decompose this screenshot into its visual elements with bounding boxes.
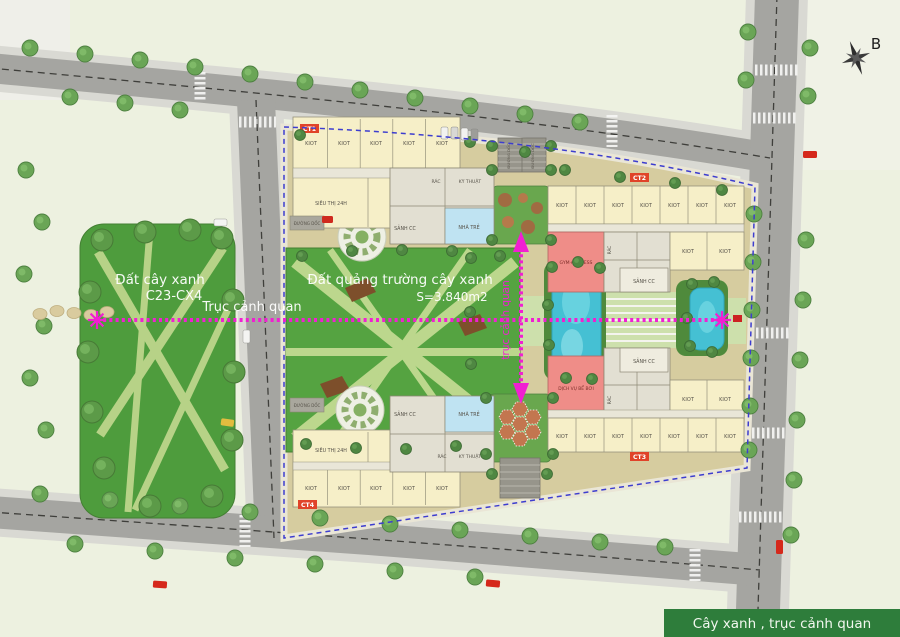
tree-icon [595,263,606,274]
tree-icon [187,59,203,75]
tree-icon [401,444,412,455]
kiot-label: KIOT [403,486,416,492]
site-plan-canvas: ĐƯỜNG DỐC ĐƯỜNG DỐC [0,0,900,637]
axis-marker [733,315,742,322]
tree-icon [34,214,50,230]
tree-icon [592,534,608,550]
tree-icon [547,262,558,273]
tree-icon [36,318,52,334]
tree-icon [22,370,38,386]
tree-icon [792,352,808,368]
tree-icon [32,486,48,502]
tree-icon [139,495,161,517]
red-car [803,151,817,158]
trash-label: RÁC [607,396,612,405]
tree-icon [22,40,38,56]
trash-label: RÁC [607,246,612,255]
compass-north-label: B [871,35,881,53]
shrub-icon [50,306,64,317]
kiot-label: KIOT [370,486,383,492]
tree-icon [798,232,814,248]
tree-icon [466,253,477,264]
tree-icon [546,235,557,246]
tree-icon [786,472,802,488]
tree-icon [79,281,101,303]
tree-icon [741,442,757,458]
tree-icon [687,279,698,290]
tree-icon [451,441,462,452]
kiot-label: KIOT [338,486,351,492]
tree-icon [297,74,313,90]
tree-icon [242,66,258,82]
kiot-label: KIOT [556,203,569,209]
tree-icon [487,165,498,176]
tree-icon [670,178,681,189]
tree-icon [465,307,476,318]
kiot-label: KIOT [584,434,597,440]
tree-icon [102,492,118,508]
tree-icon [221,429,243,451]
trash-label: RÁC [431,178,440,185]
kiot-label: KIOT [696,203,709,209]
tree-icon [543,300,554,311]
tree-icon [546,141,557,152]
kiot-label: KIOT [305,141,318,147]
tree-icon [783,527,799,543]
tree-icon [211,227,233,249]
kiot-label: KIOT [612,203,625,209]
tree-icon [487,235,498,246]
tree-icon [297,251,308,262]
tree-icon [802,40,818,56]
tree-icon [312,510,328,526]
kiot-label: KIOT [640,434,653,440]
tree-icon [522,528,538,544]
tree-icon [517,106,533,122]
ramp-label: ĐƯỜNG DỐC [506,143,511,169]
kiot-label: KIOT [719,249,732,255]
red-car [153,581,167,589]
trash-label: RÁC [437,453,446,460]
tree-icon [227,550,243,566]
tree-icon [487,469,498,480]
kiot-label: KIOT [338,141,351,147]
tree-icon [132,52,148,68]
tree-icon [742,398,758,414]
kiot-label: KIOT [682,249,695,255]
tree-icon [93,457,115,479]
tree-icon [352,82,368,98]
tree-icon [242,504,258,520]
tree-icon [179,219,201,241]
red-car [776,540,783,554]
ct3-label: CT3 [633,454,646,461]
site-plan-drawing: ĐƯỜNG DỐC ĐƯỜNG DỐC [0,0,900,637]
square-name-label: Đất quảng trường cây xanh [307,272,493,288]
tree-icon [561,373,572,384]
kiot-label: KIOT [305,486,318,492]
tree-icon [397,245,408,256]
shrub-icon [67,308,81,319]
tree-icon [548,449,559,460]
tree-icon [546,165,557,176]
tree-icon [172,498,188,514]
legend-text: Cây xanh , trục cảnh quan [693,616,871,632]
red-car [322,216,333,223]
axis-vertical-label: trục cảnh quan [500,280,512,359]
tree-icon [572,114,588,130]
tree-icon [740,24,756,40]
tree-icon [717,185,728,196]
tree-icon [351,443,362,454]
tree-icon [18,162,34,178]
tree-icon [16,266,32,282]
axis-horizontal-label: Trục cảnh quan [201,300,301,315]
hexagon-court [489,394,551,462]
ct2-label: CT2 [633,175,646,182]
ct4-label: CT4 [301,502,315,509]
tree-icon [407,90,423,106]
kiot-label: KIOT [403,141,416,147]
ramp-label: ĐƯỜNG DỐC [530,143,535,169]
tree-icon [347,246,358,257]
tree-icon [462,98,478,114]
tree-icon [307,556,323,572]
tree-icon [466,359,477,370]
kiot-label: KIOT [696,434,709,440]
axis-start-icon [88,311,106,329]
tree-icon [548,393,559,404]
kiot-label: KIOT [556,434,569,440]
tree-icon [81,401,103,423]
tree-icon [387,563,403,579]
parking-ramp-south [500,458,540,498]
tree-icon [560,165,571,176]
white-car [214,219,227,226]
tree-icon [573,257,584,268]
kiot-label: KIOT [724,434,737,440]
kiot-label: KIOT [668,203,681,209]
tree-icon [67,536,83,552]
tree-icon [91,229,113,251]
tree-icon [707,347,718,358]
tree-icon [147,543,163,559]
kiot-label: KIOT [682,397,695,403]
tree-icon [800,88,816,104]
tree-icon [172,102,188,118]
legend-banner: Cây xanh , trục cảnh quan [664,609,900,637]
tree-icon [38,422,54,438]
technical-label: KỸ THUẬT [459,453,482,460]
tree-icon [62,89,78,105]
tree-icon [452,522,468,538]
tree-icon [542,469,553,480]
tree-icon [201,485,223,507]
kiot-label: KIOT [640,203,653,209]
tree-icon [117,95,133,111]
tree-icon [382,516,398,532]
tree-icon [467,569,483,585]
kiot-label: KIOT [436,486,449,492]
technical-label: KỸ THUẬT [459,178,482,185]
tree-icon [789,412,805,428]
tree-icon [520,147,531,158]
shrub-icon [33,309,47,320]
tree-icon [544,340,555,351]
tree-icon [795,292,811,308]
white-car [243,330,250,343]
tree-icon [685,341,696,352]
kiot-label: KIOT [724,203,737,209]
square-area-label: S=3.840m2 [416,290,487,304]
tree-icon [709,277,720,288]
kiot-label: KIOT [436,141,449,147]
park-code-label: C23-CX4 [146,289,203,304]
tree-icon [481,393,492,404]
tree-icon [77,46,93,62]
park-name-label: Đất cây xanh [115,272,205,288]
tree-icon [134,221,156,243]
ramp-label: ĐƯỜNG DỐC [294,403,321,408]
axis-end-icon [713,311,731,329]
tree-icon [738,72,754,88]
tree-icon [77,341,99,363]
tree-icon [657,539,673,555]
tree-icon [481,449,492,460]
red-car [486,579,501,587]
kiot-label: KIOT [584,203,597,209]
kiot-label: KIOT [668,434,681,440]
kiot-label: KIOT [612,434,625,440]
tree-icon [495,251,506,262]
tree-icon [301,439,312,450]
kiot-label: KIOT [370,141,383,147]
tree-icon [223,361,245,383]
kiot-label: KIOT [719,397,732,403]
tree-icon [447,246,458,257]
ramp-label: ĐƯỜNG DỐC [294,221,321,226]
round-plaza-south [336,386,384,434]
tree-icon [587,374,598,385]
tree-icon [295,130,306,141]
tree-icon [615,172,626,183]
